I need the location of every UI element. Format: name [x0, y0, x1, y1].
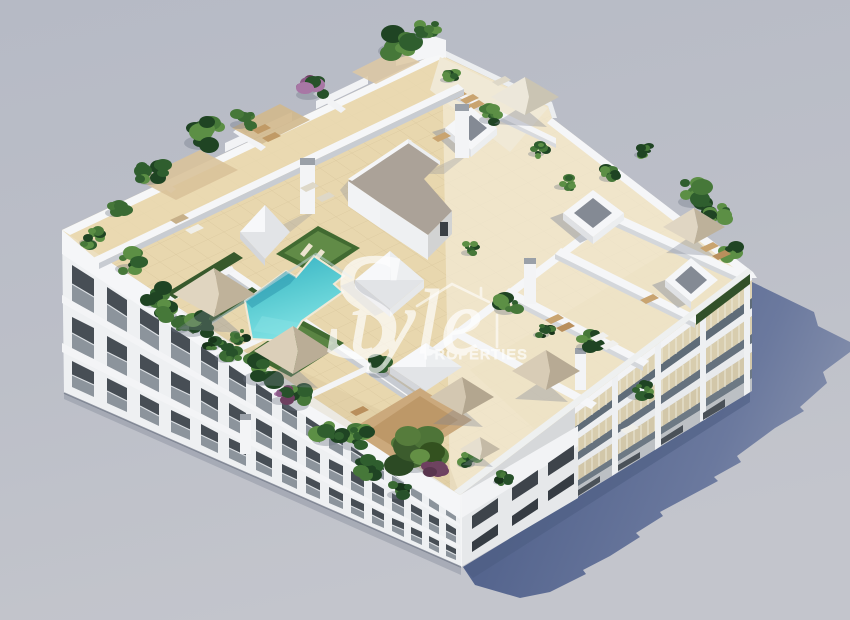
svg-text:PROPERTIES: PROPERTIES — [424, 346, 528, 362]
